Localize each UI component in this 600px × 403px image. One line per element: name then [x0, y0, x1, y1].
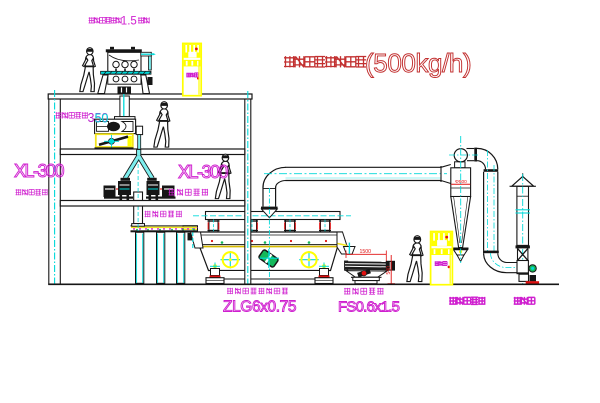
- svg-text:ZLG6x0.75: ZLG6x0.75: [223, 299, 296, 316]
- svg-text:(500kg/h): (500kg/h): [365, 48, 471, 78]
- svg-text:XL-300: XL-300: [14, 161, 65, 181]
- svg-text:50: 50: [95, 112, 109, 126]
- svg-text:Φ500: Φ500: [455, 179, 467, 185]
- svg-text:FS0.6x1.5: FS0.6x1.5: [338, 299, 400, 316]
- svg-text:1500: 1500: [360, 249, 372, 255]
- svg-text:540: 540: [386, 266, 392, 275]
- svg-text:1.5: 1.5: [121, 16, 137, 28]
- svg-text:XL-300: XL-300: [178, 162, 229, 182]
